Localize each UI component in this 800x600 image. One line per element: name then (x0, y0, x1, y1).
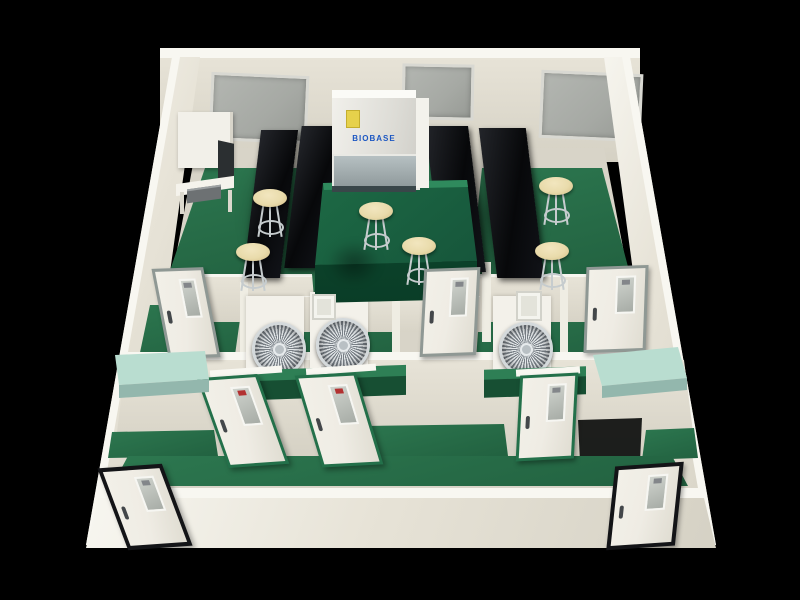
stool-footring (258, 220, 284, 235)
door-window-mark (141, 480, 151, 486)
stool-seat (402, 237, 436, 255)
door-window (328, 384, 359, 425)
wall-panel (516, 291, 542, 321)
cabinet-work-opening (332, 186, 416, 192)
stool-seat (253, 189, 287, 207)
stool-footring (364, 233, 390, 248)
workstation-desk (170, 108, 240, 218)
door-handle (316, 418, 324, 431)
door-window (230, 385, 263, 426)
lab-stool (236, 243, 270, 299)
door-window-mark (183, 282, 192, 287)
door-face (423, 270, 477, 354)
fan-hub (337, 339, 350, 352)
door-handle (220, 420, 229, 433)
door-mid-right (516, 373, 579, 462)
cabinet-glass-sash (332, 154, 420, 190)
lab-stool (359, 202, 393, 258)
door-window-mark (237, 390, 247, 396)
door-handle (121, 506, 130, 519)
stool-footring (540, 273, 566, 288)
floor-corridor-gap (104, 428, 222, 460)
door-window (546, 383, 567, 422)
wall-counter-left (108, 346, 218, 400)
door-bottom-right (606, 462, 684, 551)
door-window-mark (553, 388, 561, 393)
wall-panel-inner (521, 296, 537, 316)
stool-seat (236, 243, 270, 261)
stool-footring (544, 208, 570, 223)
door-handle (619, 505, 624, 518)
desk-leg (228, 190, 232, 212)
lab-stool (539, 177, 573, 233)
door-window (178, 278, 202, 318)
door-window (449, 278, 469, 317)
cabinet-side-panel (416, 98, 429, 188)
door-face (611, 466, 680, 546)
biosafety-cabinet: BIOBASE (330, 90, 430, 196)
wall-counter-right (585, 338, 697, 400)
door-window (644, 473, 669, 510)
lab-3d-render: BIOBASE (0, 0, 800, 600)
wall-panel (312, 294, 336, 320)
door-window-mark (335, 388, 344, 393)
stool-seat (359, 202, 393, 220)
door-handle (593, 307, 597, 320)
cabinet-body (332, 98, 416, 156)
wall-panel-inner (317, 299, 331, 315)
door-handle (525, 416, 530, 429)
door-handle (167, 311, 173, 324)
lab-stool (253, 189, 287, 245)
door-face (519, 376, 575, 459)
cabinet-brand-label: BIOBASE (338, 134, 410, 145)
fan-hub (520, 343, 533, 356)
stool-footring (241, 274, 267, 289)
desk-leg (180, 192, 184, 214)
door-window-mark (622, 280, 630, 285)
fan-hub (273, 343, 286, 356)
lab-stool (535, 242, 569, 298)
stool-seat (539, 177, 573, 195)
door-handle (429, 310, 434, 323)
door-window-mark (653, 478, 662, 484)
warning-sticker-icon (346, 110, 360, 128)
door-window-mark (455, 282, 463, 287)
door-window (615, 276, 636, 314)
door-window (133, 475, 166, 511)
wall-post (482, 262, 491, 342)
stool-seat (535, 242, 569, 260)
door-upper-center (420, 267, 481, 357)
